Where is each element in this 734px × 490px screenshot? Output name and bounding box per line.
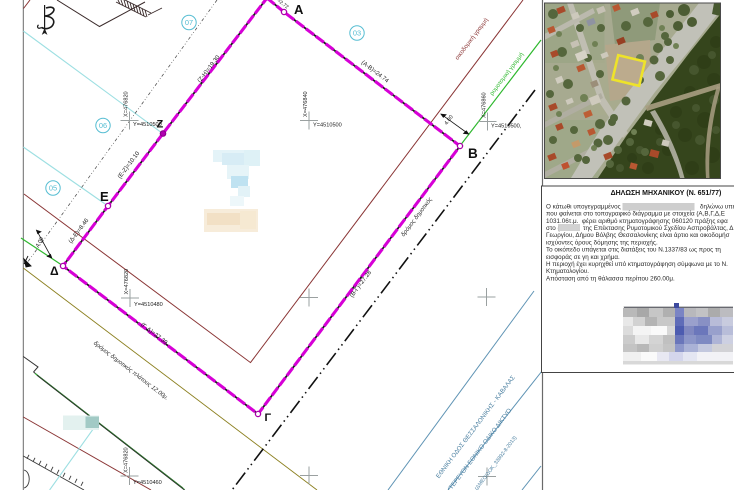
svg-text:Y=4510500: Y=4510500 — [313, 123, 342, 129]
svg-text:X=476820: X=476820 — [124, 447, 130, 473]
svg-text:Y=4510500,: Y=4510500, — [491, 124, 522, 130]
svg-text:06: 06 — [99, 121, 107, 130]
svg-text:Γεωργίου, Δήμου Βόλβης Θεσσαλο: Γεωργίου, Δήμου Βόλβης Θεσσαλονίκης είνα… — [546, 231, 730, 239]
svg-text:05: 05 — [49, 184, 57, 193]
svg-text:εισφοράς σε γη και χρήμα.: εισφοράς σε γη και χρήμα. — [546, 253, 620, 261]
svg-text:A: A — [294, 2, 304, 17]
svg-text:Y=4510480: Y=4510480 — [134, 302, 163, 308]
svg-text:Το οικόπεδο υπάγεται στις διατ: Το οικόπεδο υπάγεται στις διατάξεις του … — [546, 246, 721, 254]
svg-text:Δ: Δ — [50, 264, 59, 278]
svg-text:Z: Z — [157, 119, 164, 131]
svg-text:Απόσταση από τη θάλασσα περίπο: Απόσταση από τη θάλασσα περίπου 260.00μ. — [546, 274, 675, 282]
svg-text:Y=4510460: Y=4510460 — [133, 480, 162, 486]
svg-text:που φαίνεται στο τοπογραφικό δ: που φαίνεται στο τοπογραφικό διάγραμμα μ… — [546, 210, 725, 218]
svg-text:Ο κάτωθι υπογεγραμμένος: Ο κάτωθι υπογεγραμμένος — [546, 202, 621, 210]
svg-text:X=476840: X=476840 — [303, 91, 309, 117]
svg-text:X=476820: X=476820 — [124, 91, 130, 117]
svg-text:της Επέκτασης Ρυμοτομικού Σχεδ: της Επέκτασης Ρυμοτομικού Σχεδίου Ασπροβ… — [583, 224, 734, 232]
svg-text:1031.06τ.μ. φέρει αριθμό κτημ: 1031.06τ.μ. φέρει αριθμό κτηματογράφησης… — [546, 217, 728, 225]
svg-text:Γ: Γ — [265, 412, 272, 424]
svg-text:Η περιοχή έχει κυρηχθεί υπό κτ: Η περιοχή έχει κυρηχθεί υπό κτηματογράφη… — [546, 260, 728, 268]
svg-text:Κτηματολογίου.: Κτηματολογίου. — [546, 267, 589, 275]
svg-text:X=476860: X=476860 — [482, 92, 488, 118]
svg-text:ΔΗΛΩΣΗ ΜΗΧΑΝΙΚΟΥ (Ν. 651/77): ΔΗΛΩΣΗ ΜΗΧΑΝΙΚΟΥ (Ν. 651/77) — [611, 190, 722, 197]
svg-text:07: 07 — [185, 18, 193, 27]
svg-text:B: B — [468, 146, 478, 161]
svg-text:X=476820: X=476820 — [124, 269, 130, 295]
svg-text:δηλώνω υπε: δηλώνω υπε — [700, 202, 734, 210]
svg-text:03: 03 — [353, 29, 361, 38]
svg-text:ισχύοντες όρους δόμησης της πε: ισχύοντες όρους δόμησης της περιοχής. — [546, 238, 658, 246]
svg-text:E: E — [100, 189, 109, 204]
